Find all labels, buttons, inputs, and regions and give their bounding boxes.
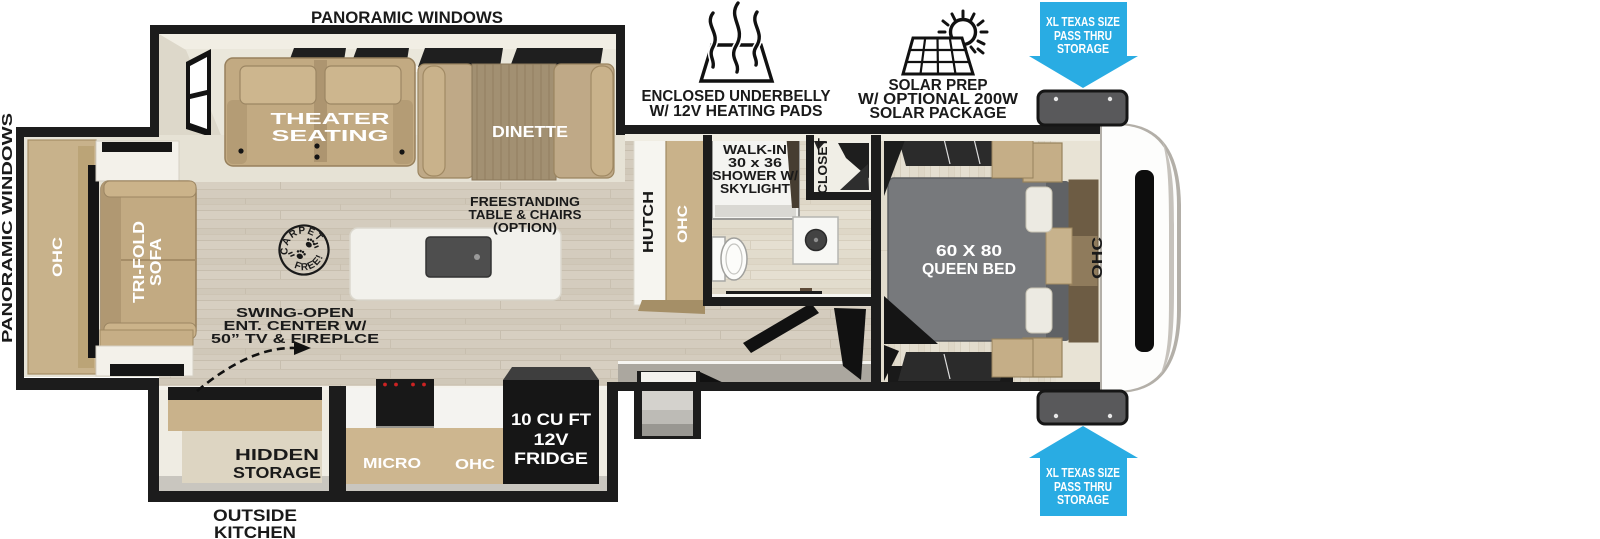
svg-text:STORAGE: STORAGE	[233, 465, 321, 482]
svg-text:60 X 80: 60 X 80	[936, 243, 1002, 260]
svg-text:SKYLIGHT: SKYLIGHT	[720, 182, 790, 196]
svg-text:QUEEN BED: QUEEN BED	[922, 261, 1016, 278]
svg-text:FRIDGE: FRIDGE	[514, 450, 588, 468]
svg-text:KITCHEN: KITCHEN	[214, 524, 296, 539]
svg-text:10 CU FT: 10 CU FT	[511, 411, 591, 429]
svg-text:STORAGE: STORAGE	[1057, 493, 1109, 507]
svg-text:SOLAR PACKAGE: SOLAR PACKAGE	[870, 105, 1007, 122]
svg-text:OUTSIDE: OUTSIDE	[213, 507, 297, 525]
svg-text:W/ 12V HEATING PADS: W/ 12V HEATING PADS	[650, 103, 823, 120]
svg-text:XL TEXAS SIZE: XL TEXAS SIZE	[1046, 15, 1120, 29]
svg-text:HIDDEN: HIDDEN	[235, 447, 319, 464]
svg-text:CLOSET: CLOSET	[816, 138, 830, 194]
svg-text:OHC: OHC	[1089, 237, 1106, 279]
svg-text:50” TV & FIREPLCE: 50” TV & FIREPLCE	[211, 331, 379, 346]
svg-text:OHC: OHC	[49, 237, 65, 277]
svg-text:THEATER: THEATER	[271, 111, 391, 128]
svg-text:SOFA: SOFA	[148, 238, 165, 286]
svg-text:PASS THRU: PASS THRU	[1054, 29, 1112, 43]
svg-text:HUTCH: HUTCH	[640, 191, 657, 253]
svg-text:30 x 36: 30 x 36	[728, 156, 782, 170]
svg-text:12V: 12V	[534, 431, 569, 449]
svg-text:TRI-FOLD: TRI-FOLD	[131, 221, 148, 303]
svg-text:MICRO: MICRO	[363, 455, 421, 472]
svg-text:PASS THRU: PASS THRU	[1054, 480, 1112, 494]
svg-text:XL TEXAS SIZE: XL TEXAS SIZE	[1046, 466, 1120, 480]
svg-text:PANORAMIC WINDOWS: PANORAMIC WINDOWS	[0, 113, 16, 343]
svg-text:STORAGE: STORAGE	[1057, 42, 1109, 56]
svg-text:OHC: OHC	[455, 457, 496, 473]
svg-text:WALK-IN: WALK-IN	[723, 143, 787, 157]
svg-text:SHOWER W/: SHOWER W/	[712, 169, 799, 183]
svg-text:SEATING: SEATING	[272, 128, 389, 145]
svg-text:OHC: OHC	[675, 205, 690, 243]
svg-text:PANORAMIC WINDOWS: PANORAMIC WINDOWS	[311, 9, 503, 27]
svg-text:(OPTION): (OPTION)	[493, 220, 557, 235]
svg-text:DINETTE: DINETTE	[492, 124, 568, 141]
